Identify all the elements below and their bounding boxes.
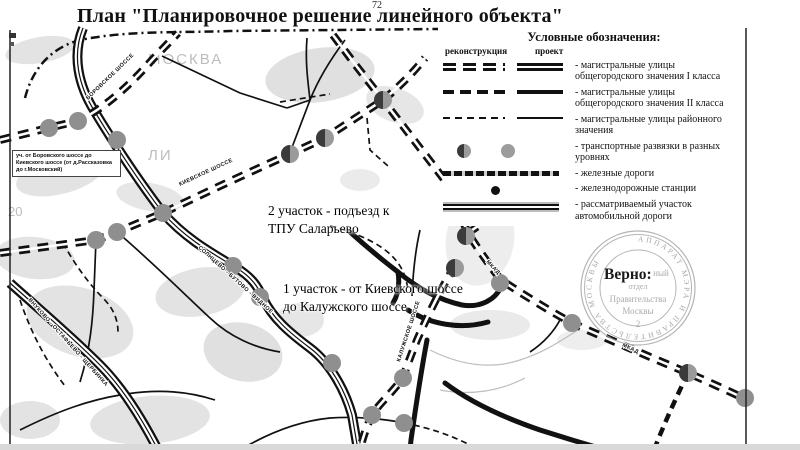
label-borovskoe: БОРОВСКОЕ ШОССЕ [85,53,135,102]
swatch-recon-district-line [443,117,505,119]
swatch-recon-class2-line [443,90,505,94]
swatch-subject-band [443,202,559,212]
annotation-section1-line2: до Калужского шоссе [283,299,407,315]
swatch-railway-line [443,171,559,176]
swatch-interchange-project-icon [501,144,515,158]
svg-text:ный: ный [653,268,669,278]
left-note-box: уч. от Боровского шоссе до Киевского шос… [12,150,121,177]
minor-faint-roads [430,330,578,393]
legend-item-railways: - железные дороги [443,168,745,180]
legend-box: Условные обозначения: реконструкция прое… [443,30,745,226]
legend-item-subject-section: - рассматриваемый участокавтомобильной д… [443,199,745,222]
legend-item-rail-stations: - железнодорожные станции [443,183,745,195]
annotation-section2-line1: 2 участок - подъезд к [268,203,389,219]
scanned-plan-page: { "page": { "number": "72" }, "title": "… [0,0,800,450]
legend-item-district: - магистральные улицы районногозначения [443,114,745,137]
svg-text:Правительства: Правительства [610,294,667,304]
legend-col-project: проект [535,46,563,56]
legend-item-class1: - магистральные улицыобщегородского знач… [443,60,745,83]
swatch-project-class1-line [517,63,563,71]
swatch-recon-class1-line [443,63,505,71]
swatch-rail-station-icon [491,186,500,195]
annotation-section2-line2: ТПУ Саларьево [268,221,359,237]
swatch-interchange-recon-icon [457,144,471,158]
bg-text-li: ЛИ [148,147,173,164]
legend-item-interchanges: - транспортные развязки в разных уровнях [443,141,745,164]
legend-title: Условные обозначения: [443,30,745,44]
legend-col-reconstruction: реконструкция [445,46,527,56]
svg-text:2: 2 [636,319,641,329]
swatch-project-district-line [517,117,563,119]
stamp-verno-text: Верно: [604,266,652,283]
page-title: План "Планировочное решение линейного об… [20,5,620,28]
annotation-section1-line1: 1 участок - от Киевского шоссе [283,281,463,297]
swatch-project-class2-line [517,90,563,94]
legend-item-class2: - магистральные улицыобщегородского знач… [443,87,745,110]
fat-dashed-roads [654,373,688,450]
legend-column-headers: реконструкция проект [443,46,745,56]
approval-stamp: АППАРАТ МЭРА И ПРАВИТЕЛЬСТВА МОСКВЫ ный … [558,210,718,370]
svg-text:отдел: отдел [629,282,648,291]
scan-edge-strip [0,444,800,450]
svg-text:Москвы: Москвы [622,306,653,316]
